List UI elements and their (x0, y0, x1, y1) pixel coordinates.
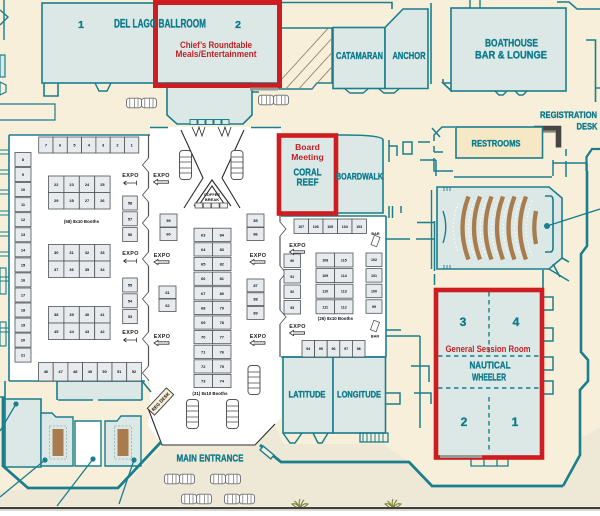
svg-text:113: 113 (341, 290, 347, 294)
svg-text:17: 17 (21, 293, 25, 298)
svg-text:1: 1 (78, 19, 84, 31)
svg-text:NAUTICAL: NAUTICAL (470, 361, 511, 372)
svg-text:EXPO: EXPO (122, 330, 139, 336)
svg-text:BAR: BAR (371, 335, 379, 339)
svg-text:111: 111 (322, 305, 328, 309)
svg-text:LONGITUDE: LONGITUDE (337, 390, 381, 401)
svg-text:EXPO: EXPO (154, 253, 171, 259)
svg-text:115: 115 (341, 259, 347, 263)
svg-text:REGISTRATION: REGISTRATION (540, 110, 597, 121)
svg-text:93: 93 (290, 306, 294, 310)
svg-text:4: 4 (513, 315, 520, 329)
svg-text:2: 2 (235, 19, 241, 31)
svg-text:(58) 8x10 Booths: (58) 8x10 Booths (64, 219, 100, 224)
svg-text:EXPO: EXPO (122, 173, 139, 179)
svg-text:112: 112 (341, 305, 347, 309)
svg-text:DEL LAGO BALLROOM: DEL LAGO BALLROOM (114, 19, 206, 31)
svg-text:80: 80 (220, 291, 224, 296)
svg-text:ANCHOR: ANCHOR (393, 51, 427, 62)
svg-text:27: 27 (85, 198, 89, 203)
svg-text:(31) 8x10 Booths: (31) 8x10 Booths (192, 391, 228, 396)
svg-text:(26) 8x10 Booths: (26) 8x10 Booths (318, 316, 354, 321)
svg-text:102: 102 (371, 258, 377, 262)
svg-text:20: 20 (21, 338, 25, 343)
svg-text:CATAMARAN: CATAMARAN (336, 51, 383, 62)
svg-text:BREAK: BREAK (205, 197, 219, 202)
svg-text:101: 101 (371, 274, 377, 278)
svg-text:104: 104 (342, 225, 348, 229)
svg-text:BAR: BAR (371, 232, 379, 236)
svg-text:2: 2 (461, 415, 468, 429)
svg-text:94: 94 (306, 347, 310, 351)
svg-text:105: 105 (327, 225, 333, 229)
svg-text:EXPO: EXPO (122, 251, 139, 257)
svg-text:60: 60 (166, 232, 170, 237)
svg-text:LATITUDE: LATITUDE (289, 390, 326, 401)
svg-text:108: 108 (322, 259, 328, 263)
svg-text:100: 100 (371, 289, 377, 293)
svg-text:EXPO: EXPO (289, 324, 306, 330)
svg-text:BOARDWALK: BOARDWALK (336, 172, 383, 183)
svg-text:99: 99 (372, 305, 376, 309)
svg-text:37: 37 (54, 267, 58, 272)
svg-text:EXPO: EXPO (154, 334, 171, 340)
svg-text:EXPO: EXPO (153, 173, 170, 179)
svg-text:77: 77 (220, 335, 224, 340)
svg-text:WHEELER: WHEELER (472, 373, 506, 384)
svg-text:Meeting: Meeting (291, 152, 323, 162)
svg-text:91: 91 (290, 275, 294, 279)
svg-text:EXPO: EXPO (250, 334, 267, 340)
svg-text:70: 70 (201, 335, 205, 340)
svg-text:110: 110 (322, 290, 328, 294)
svg-text:57: 57 (128, 216, 132, 221)
svg-text:7: 7 (45, 143, 47, 148)
svg-text:114: 114 (341, 274, 347, 278)
svg-text:40: 40 (85, 312, 89, 317)
svg-text:RESTROOMS: RESTROOMS (472, 139, 521, 150)
svg-text:BAR & LOUNGE: BAR & LOUNGE (475, 50, 547, 62)
svg-text:10: 10 (21, 187, 25, 192)
svg-text:MAIN ENTRANCE: MAIN ENTRANCE (177, 453, 244, 465)
svg-text:1: 1 (512, 415, 519, 429)
svg-text:BOATHOUSE: BOATHOUSE (485, 38, 538, 50)
svg-text:103: 103 (356, 225, 362, 229)
svg-text:50: 50 (102, 369, 106, 374)
svg-text:Meals/Entertainment: Meals/Entertainment (176, 49, 257, 59)
svg-text:DESK: DESK (577, 122, 598, 133)
svg-text:98: 98 (357, 347, 361, 351)
svg-text:109: 109 (322, 274, 328, 278)
svg-text:3: 3 (460, 315, 467, 329)
svg-text:107: 107 (298, 225, 304, 229)
svg-text:REEF: REEF (297, 177, 319, 189)
svg-text:67: 67 (201, 291, 205, 296)
svg-text:106: 106 (313, 225, 319, 229)
svg-text:Board: Board (295, 142, 320, 152)
svg-text:90: 90 (290, 259, 294, 263)
svg-text:EXPO: EXPO (250, 253, 267, 259)
svg-text:87: 87 (253, 283, 257, 288)
svg-text:96: 96 (332, 347, 336, 351)
svg-text:97: 97 (344, 347, 348, 351)
svg-text:EXPO: EXPO (289, 243, 306, 249)
svg-text:30: 30 (54, 250, 58, 255)
svg-text:92: 92 (290, 290, 294, 294)
svg-text:95: 95 (319, 347, 323, 351)
svg-text:General Session Room: General Session Room (446, 344, 531, 354)
svg-text:47: 47 (58, 369, 62, 374)
